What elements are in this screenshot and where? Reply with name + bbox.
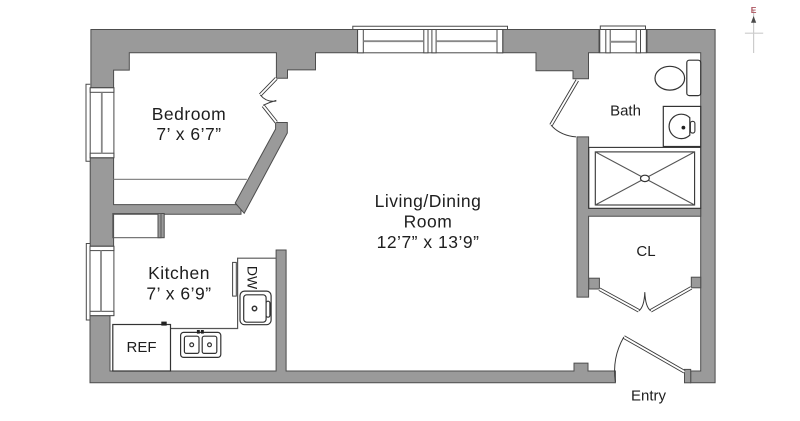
svg-text:7’ x 6’7”: 7’ x 6’7” bbox=[156, 124, 221, 144]
svg-text:Living/Dining: Living/Dining bbox=[375, 191, 482, 211]
svg-text:Bath: Bath bbox=[610, 103, 641, 120]
svg-text:CL: CL bbox=[636, 243, 655, 260]
svg-text:E: E bbox=[751, 5, 757, 15]
svg-text:REF: REF bbox=[127, 339, 157, 356]
svg-text:12’7” x 13’9”: 12’7” x 13’9” bbox=[377, 232, 480, 252]
svg-text:DW: DW bbox=[245, 266, 261, 290]
svg-text:Room: Room bbox=[404, 212, 453, 232]
svg-text:Bedroom: Bedroom bbox=[152, 104, 227, 124]
svg-text:Entry: Entry bbox=[631, 388, 667, 405]
svg-text:7’ x 6’9”: 7’ x 6’9” bbox=[146, 284, 211, 304]
svg-text:Kitchen: Kitchen bbox=[148, 263, 210, 283]
